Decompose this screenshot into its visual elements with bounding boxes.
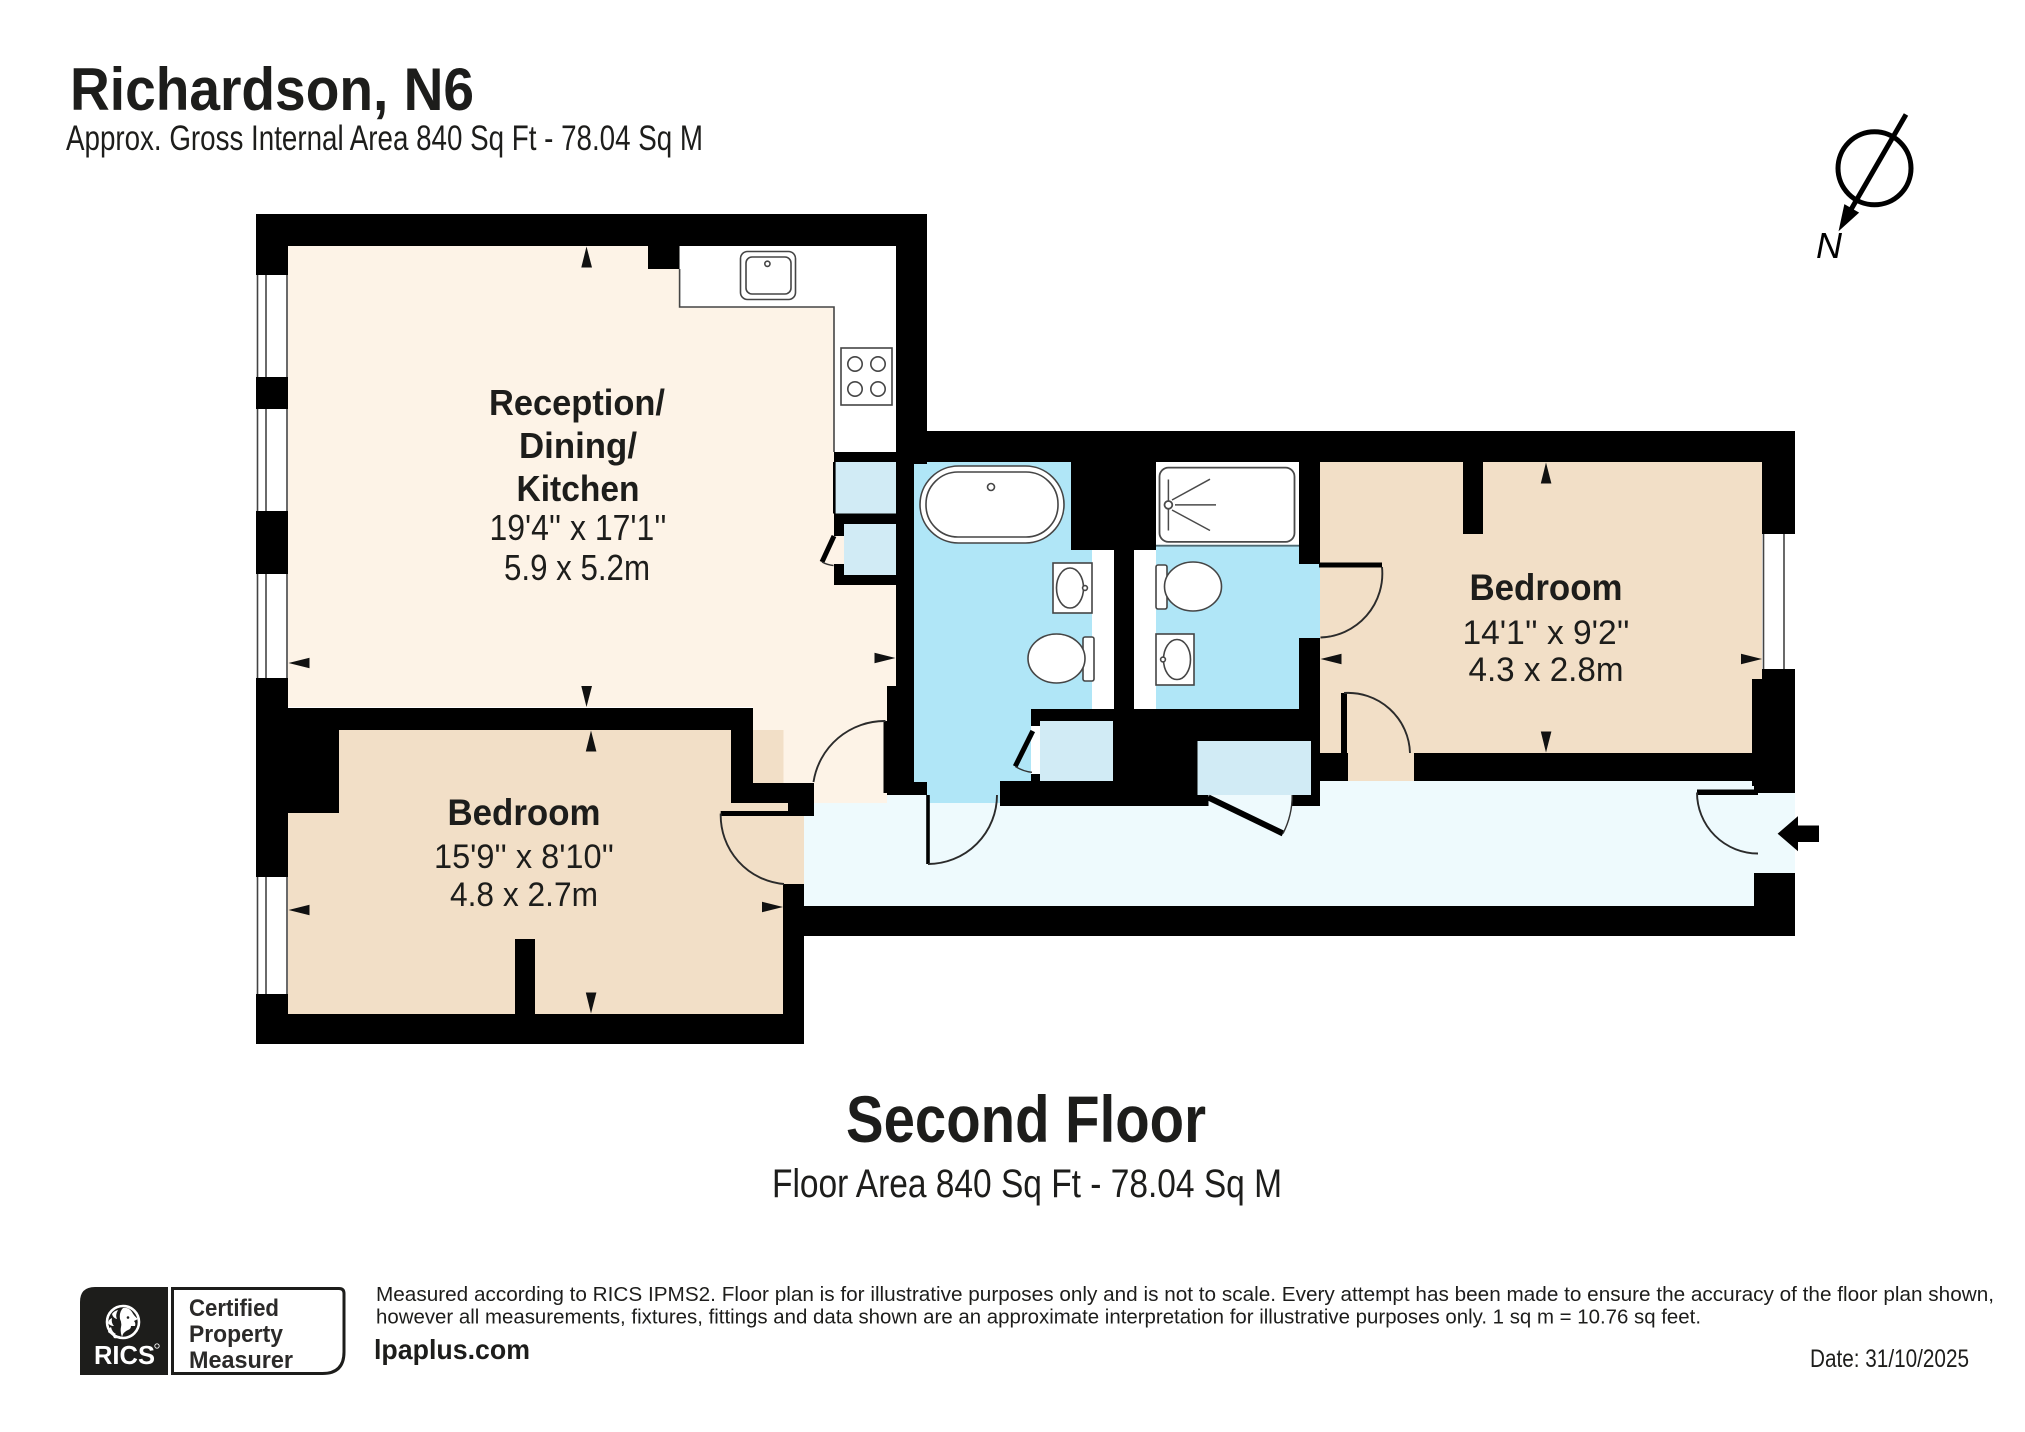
svg-text:Second Floor: Second Floor — [846, 1082, 1206, 1156]
svg-text:Reception/: Reception/ — [489, 382, 665, 423]
svg-text:Dining/: Dining/ — [519, 425, 637, 466]
svg-text:Floor Area 840 Sq Ft - 78.04 S: Floor Area 840 Sq Ft - 78.04 Sq M — [772, 1162, 1282, 1206]
svg-text:Measurer: Measurer — [189, 1347, 293, 1374]
svg-text:Kitchen: Kitchen — [517, 468, 640, 509]
svg-text:RICS: RICS — [94, 1340, 155, 1370]
svg-text:14'1'' x 9'2'': 14'1'' x 9'2'' — [1463, 614, 1630, 652]
svg-text:Certified: Certified — [189, 1295, 279, 1322]
svg-text:4.3 x 2.8m: 4.3 x 2.8m — [1469, 651, 1624, 689]
svg-text:4.8 x 2.7m: 4.8 x 2.7m — [450, 876, 598, 914]
svg-text:Approx. Gross Internal Area 84: Approx. Gross Internal Area 840 Sq Ft - … — [66, 119, 703, 158]
svg-text:19'4'' x 17'1'': 19'4'' x 17'1'' — [490, 507, 667, 548]
svg-text:Measured according to RICS IPM: Measured according to RICS IPMS2. Floor … — [376, 1283, 1994, 1306]
svg-text:Richardson, N6: Richardson, N6 — [70, 56, 474, 123]
svg-text:Bedroom: Bedroom — [1470, 567, 1623, 608]
svg-text:however all measurements, fixt: however all measurements, fixtures, fitt… — [376, 1306, 1701, 1329]
svg-text:Date: 31/10/2025: Date: 31/10/2025 — [1810, 1345, 1969, 1373]
svg-text:Property: Property — [189, 1321, 284, 1348]
svg-text:Bedroom: Bedroom — [448, 792, 601, 833]
svg-text:5.9 x 5.2m: 5.9 x 5.2m — [504, 547, 650, 588]
svg-text:15'9'' x 8'10'': 15'9'' x 8'10'' — [434, 838, 614, 876]
svg-text:N: N — [1816, 225, 1843, 266]
svg-text:lpaplus.com: lpaplus.com — [374, 1334, 530, 1365]
